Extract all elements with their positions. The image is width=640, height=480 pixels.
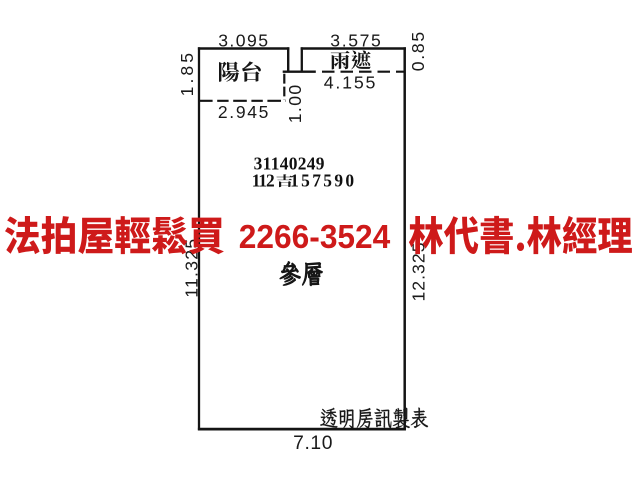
svg-text:4.155: 4.155 [324,73,376,93]
svg-text:1.85: 1.85 [177,53,197,97]
svg-text:112: 112 [252,171,275,191]
svg-text:3.095: 3.095 [218,31,268,51]
svg-text:2266-3524: 2266-3524 [239,218,391,255]
svg-text:3.575: 3.575 [330,31,381,51]
svg-text:7.10: 7.10 [293,433,332,454]
svg-text:2.945: 2.945 [218,102,269,122]
svg-text:0.85: 0.85 [408,32,428,72]
svg-text:11.325: 11.325 [182,239,202,298]
svg-text:1.00: 1.00 [285,85,305,124]
